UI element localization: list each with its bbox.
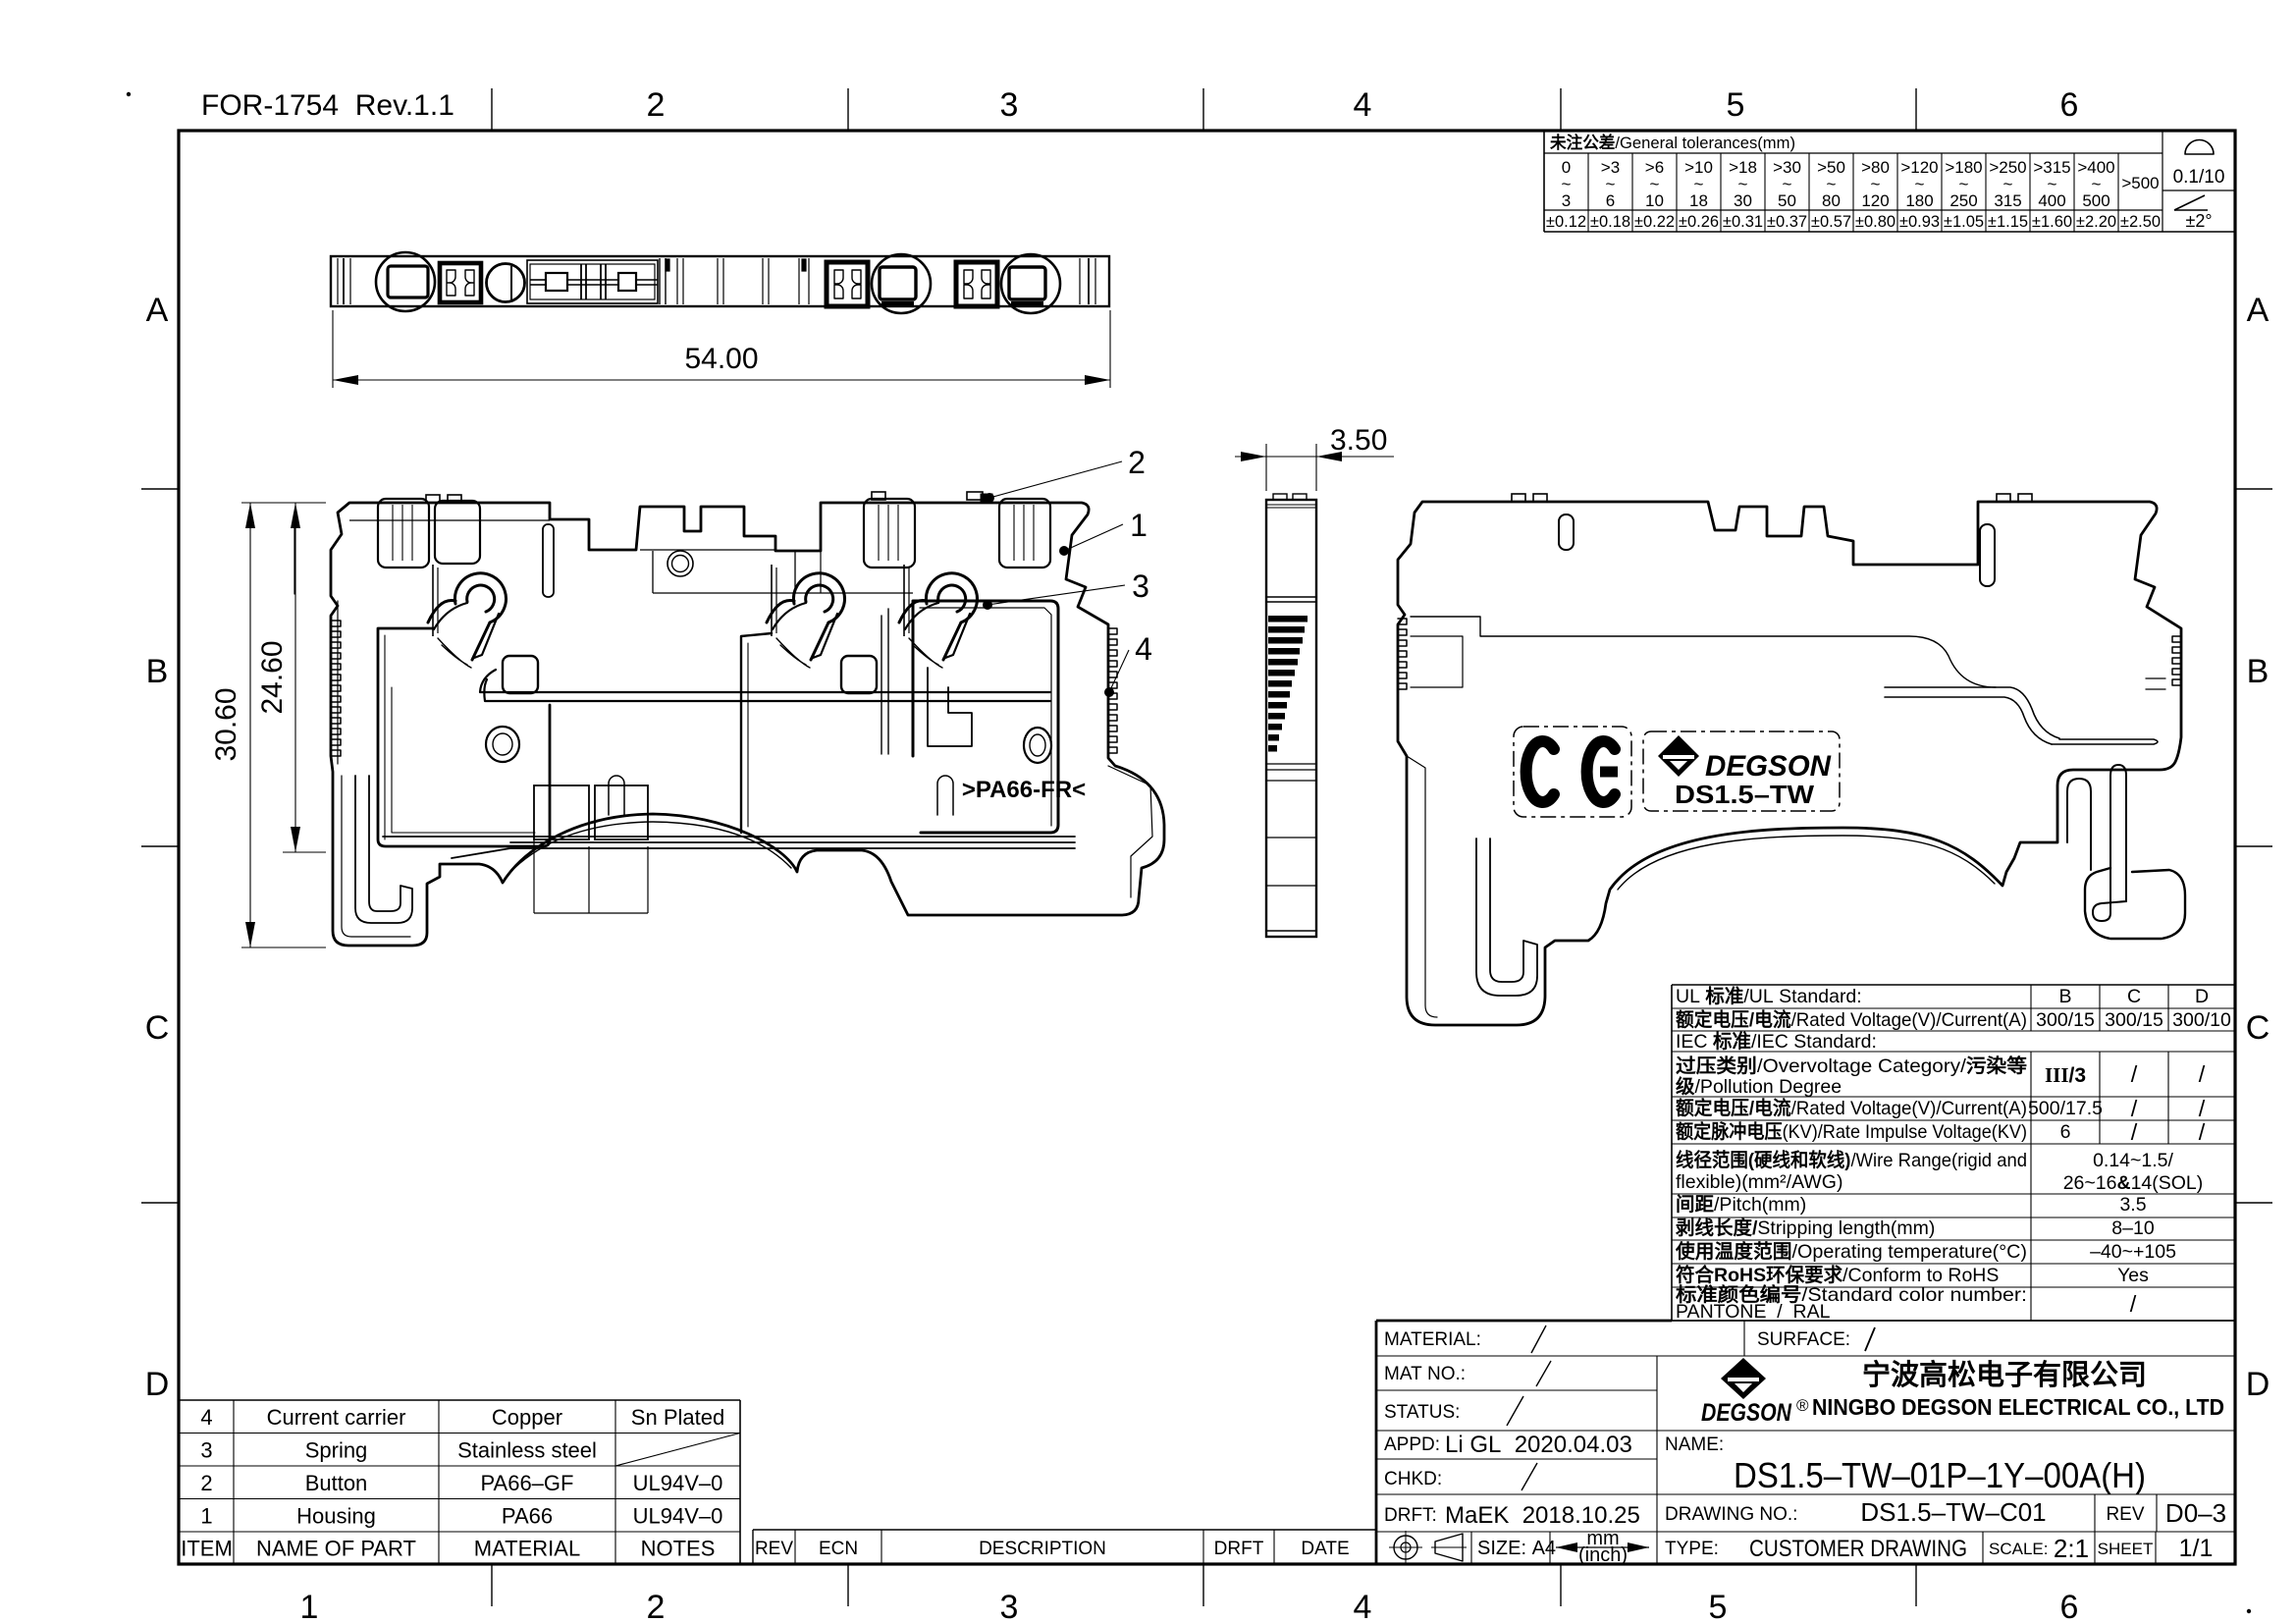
svg-text:±1.05: ±1.05 <box>1944 213 1984 231</box>
svg-text:300/15: 300/15 <box>2036 1009 2095 1031</box>
svg-text:SHEET: SHEET <box>2098 1540 2154 1558</box>
svg-text:Stainless steel: Stainless steel <box>457 1437 597 1462</box>
svg-text:8–10: 8–10 <box>2111 1217 2155 1239</box>
svg-text:315: 315 <box>1994 191 2021 210</box>
svg-text:Yes: Yes <box>2117 1265 2149 1286</box>
svg-text:使用温度范围/Operating temperature(°: 使用温度范围/Operating temperature(°C) <box>1675 1240 2027 1263</box>
svg-text:/: / <box>2199 1061 2206 1087</box>
svg-text:REV: REV <box>755 1539 793 1559</box>
svg-text:DESCRIPTION: DESCRIPTION <box>979 1539 1106 1559</box>
svg-text:4: 4 <box>200 1405 212 1430</box>
svg-text:Copper: Copper <box>492 1405 562 1430</box>
svg-text:±2.20: ±2.20 <box>2076 213 2116 231</box>
svg-text:DRFT: DRFT <box>1214 1539 1264 1559</box>
svg-text:SCALE:: SCALE: <box>1989 1540 2048 1558</box>
svg-text:2: 2 <box>647 86 666 124</box>
svg-text:180: 180 <box>1905 191 1933 210</box>
svg-text:未注公差/General tolerances(mm): 未注公差/General tolerances(mm) <box>1549 133 1795 152</box>
svg-text:10: 10 <box>1645 191 1664 210</box>
svg-text:2:1: 2:1 <box>2054 1534 2089 1563</box>
svg-text:5: 5 <box>1709 1589 1728 1623</box>
svg-text:UL94V–0: UL94V–0 <box>633 1471 723 1495</box>
svg-text:DRFT:: DRFT: <box>1384 1505 1437 1526</box>
svg-text:宁波高松电子有限公司: 宁波高松电子有限公司 <box>1862 1358 2147 1391</box>
svg-text:4: 4 <box>1354 1589 1372 1623</box>
svg-text:120: 120 <box>1861 191 1889 210</box>
svg-text:DS1.5–TW: DS1.5–TW <box>1675 780 1814 809</box>
svg-text:过压类别/Overvoltage Category/污染等: 过压类别/Overvoltage Category/污染等 <box>1676 1055 2028 1077</box>
svg-text:®: ® <box>1796 1396 1809 1415</box>
svg-text:Spring: Spring <box>305 1437 368 1462</box>
svg-text:5: 5 <box>1727 86 1745 124</box>
svg-text:250: 250 <box>1949 191 1977 210</box>
svg-text:B: B <box>146 653 169 690</box>
svg-text:额定电压/电流/Rated Voltage(V)/Curre: 额定电压/电流/Rated Voltage(V)/Current(A) <box>1676 1097 2027 1119</box>
svg-text:/: / <box>2131 1096 2138 1121</box>
svg-text:IEC 标准/IEC Standard:: IEC 标准/IEC Standard: <box>1676 1031 1877 1053</box>
svg-text:MAT NO.:: MAT NO.: <box>1384 1364 1466 1384</box>
svg-text:间距/Pitch(mm): 间距/Pitch(mm) <box>1676 1194 1806 1216</box>
svg-text:STATUS:: STATUS: <box>1384 1402 1460 1423</box>
svg-text:flexible)(mm²/AWG): flexible)(mm²/AWG) <box>1676 1171 1842 1193</box>
svg-text:APPD:: APPD: <box>1384 1434 1440 1455</box>
svg-text:±0.18: ±0.18 <box>1590 213 1630 231</box>
svg-text:3: 3 <box>1562 191 1571 210</box>
svg-text:MATERIAL:: MATERIAL: <box>1384 1329 1481 1350</box>
svg-text:/: / <box>2199 1119 2206 1145</box>
svg-text:30.60: 30.60 <box>210 687 242 761</box>
svg-text:±2°: ±2° <box>2185 211 2212 231</box>
svg-text:NAME:: NAME: <box>1665 1434 1724 1455</box>
svg-text:1: 1 <box>200 1503 212 1528</box>
svg-text:300/10: 300/10 <box>2172 1009 2231 1031</box>
svg-text:D0–3: D0–3 <box>2165 1498 2226 1528</box>
svg-text:400: 400 <box>2038 191 2065 210</box>
svg-text:6: 6 <box>2060 1589 2079 1623</box>
svg-text:6: 6 <box>2060 1121 2071 1143</box>
svg-text:300/15: 300/15 <box>2105 1009 2163 1031</box>
svg-text:DS1.5–TW–01P–1Y–00A(H): DS1.5–TW–01P–1Y–00A(H) <box>1734 1455 2146 1495</box>
svg-text:NOTES: NOTES <box>641 1537 716 1561</box>
svg-text:1: 1 <box>300 1589 319 1623</box>
svg-text:B: B <box>2058 986 2071 1007</box>
svg-text:D: D <box>2246 1366 2270 1403</box>
svg-text:6: 6 <box>1606 191 1615 210</box>
svg-text:54.00: 54.00 <box>684 343 758 375</box>
svg-text:级/Pollution Degree: 级/Pollution Degree <box>1676 1075 1842 1098</box>
svg-text:C: C <box>2246 1009 2270 1047</box>
svg-text:2: 2 <box>200 1471 212 1495</box>
svg-text:6: 6 <box>2060 86 2079 124</box>
svg-text:3: 3 <box>1132 568 1149 604</box>
svg-text:剥线长度/Stripping length(mm): 剥线长度/Stripping length(mm) <box>1676 1217 1935 1239</box>
svg-text:–40~+105: –40~+105 <box>2090 1241 2176 1263</box>
svg-text:SIZE: A4: SIZE: A4 <box>1477 1538 1556 1559</box>
svg-text:80: 80 <box>1822 191 1841 210</box>
svg-text:ITEM: ITEM <box>181 1537 233 1561</box>
svg-text:ECN: ECN <box>819 1539 858 1559</box>
svg-text:PA66–GF: PA66–GF <box>481 1471 574 1495</box>
svg-text:A: A <box>2247 292 2269 329</box>
svg-text:FOR-1754 Rev.1.1: FOR-1754 Rev.1.1 <box>201 89 454 122</box>
svg-text:/: / <box>2131 1119 2138 1145</box>
svg-text:1: 1 <box>1130 508 1148 543</box>
svg-text:C: C <box>145 1009 170 1047</box>
svg-text:SURFACE:: SURFACE: <box>1757 1329 1850 1350</box>
svg-text:±0.22: ±0.22 <box>1634 213 1675 231</box>
svg-text:DEGSON: DEGSON <box>1701 1399 1792 1427</box>
svg-text:4: 4 <box>1135 631 1152 667</box>
svg-text:18: 18 <box>1689 191 1708 210</box>
svg-text:3: 3 <box>200 1437 212 1462</box>
svg-text:TYPE:: TYPE: <box>1665 1539 1719 1559</box>
svg-text:±0.31: ±0.31 <box>1723 213 1763 231</box>
svg-text:1/1: 1/1 <box>2179 1535 2214 1562</box>
svg-text:符合RoHS环保要求/Conform to RoHS: 符合RoHS环保要求/Conform to RoHS <box>1676 1264 1999 1286</box>
svg-text:±0.26: ±0.26 <box>1679 213 1719 231</box>
svg-text:CUSTOMER DRAWING: CUSTOMER DRAWING <box>1749 1536 1967 1562</box>
svg-text:2: 2 <box>1128 445 1146 480</box>
svg-text:Li GL 2020.04.03: Li GL 2020.04.03 <box>1445 1432 1632 1458</box>
svg-text:NINGBO DEGSON ELECTRICAL CO.,: NINGBO DEGSON ELECTRICAL CO., LTD <box>1812 1394 2224 1420</box>
svg-text:0.1/10: 0.1/10 <box>2173 167 2225 188</box>
svg-text:3.50: 3.50 <box>1330 424 1387 457</box>
svg-text:±2.50: ±2.50 <box>2120 213 2161 231</box>
svg-text:NAME OF PART: NAME OF PART <box>256 1537 416 1561</box>
svg-text:500/17.5: 500/17.5 <box>2028 1098 2103 1119</box>
svg-text:±0.12: ±0.12 <box>1546 213 1586 231</box>
svg-text:Current carrier: Current carrier <box>267 1405 406 1430</box>
svg-text:3.5: 3.5 <box>2119 1194 2146 1216</box>
svg-text:3: 3 <box>1000 1589 1019 1623</box>
svg-text:3: 3 <box>1000 86 1019 124</box>
svg-text:30: 30 <box>1734 191 1752 210</box>
svg-text:Housing: Housing <box>296 1503 376 1528</box>
svg-text:额定电压/电流/Rated Voltage(V)/Curre: 额定电压/电流/Rated Voltage(V)/Current(A) <box>1676 1008 2027 1031</box>
svg-text:/: / <box>2131 1061 2138 1087</box>
svg-text:24.60: 24.60 <box>256 640 289 714</box>
svg-text:额定脉冲电压(KV)/Rate Impulse Voltag: 额定脉冲电压(KV)/Rate Impulse Voltage(KV) <box>1676 1120 2027 1143</box>
svg-text:DS1.5–TW–C01: DS1.5–TW–C01 <box>1860 1497 2046 1527</box>
svg-text:±1.15: ±1.15 <box>1988 213 2028 231</box>
svg-text:50: 50 <box>1778 191 1796 210</box>
svg-text:±1.60: ±1.60 <box>2032 213 2072 231</box>
svg-text:2: 2 <box>647 1589 666 1623</box>
svg-text:MATERIAL: MATERIAL <box>474 1537 580 1561</box>
svg-text:/: / <box>2199 1096 2206 1121</box>
svg-text:>PA66-FR<: >PA66-FR< <box>962 777 1086 803</box>
svg-text:4: 4 <box>1354 86 1372 124</box>
svg-text:±0.80: ±0.80 <box>1855 213 1896 231</box>
svg-text:D: D <box>2195 986 2209 1007</box>
svg-text:/: / <box>2130 1291 2137 1317</box>
svg-text:>500: >500 <box>2121 174 2159 192</box>
svg-text:UL94V–0: UL94V–0 <box>633 1503 723 1528</box>
svg-text:±0.37: ±0.37 <box>1767 213 1807 231</box>
svg-text:III/3: III/3 <box>2045 1063 2086 1087</box>
svg-text:CHKD:: CHKD: <box>1384 1469 1442 1489</box>
svg-text:MaEK 2018.10.25: MaEK 2018.10.25 <box>1445 1502 1640 1529</box>
svg-text:Button: Button <box>305 1471 368 1495</box>
svg-text:线径范围(硬线和软线)/Wire Range(rigid a: 线径范围(硬线和软线)/Wire Range(rigid and <box>1676 1149 2027 1171</box>
svg-text:UL 标准/UL Standard:: UL 标准/UL Standard: <box>1676 986 1862 1007</box>
svg-text:Sn Plated: Sn Plated <box>631 1405 724 1430</box>
svg-text:C: C <box>2127 986 2141 1007</box>
svg-text:DEGSON: DEGSON <box>1705 750 1832 783</box>
svg-text:DATE: DATE <box>1301 1539 1349 1559</box>
svg-text:PA66: PA66 <box>502 1503 553 1528</box>
svg-text:DRAWING NO.:: DRAWING NO.: <box>1665 1504 1797 1525</box>
svg-text:REV: REV <box>2106 1504 2144 1525</box>
svg-text:B: B <box>2247 653 2269 690</box>
svg-text:0.14~1.5/: 0.14~1.5/ <box>2093 1150 2173 1171</box>
svg-text:500: 500 <box>2082 191 2109 210</box>
svg-text:±0.57: ±0.57 <box>1811 213 1851 231</box>
svg-text:D: D <box>145 1366 170 1403</box>
svg-text:±0.93: ±0.93 <box>1899 213 1940 231</box>
svg-text:26~16&14(SOL): 26~16&14(SOL) <box>2063 1172 2204 1194</box>
svg-text:PANTONE / RAL: PANTONE / RAL <box>1676 1301 1831 1323</box>
svg-text:A: A <box>146 292 169 329</box>
